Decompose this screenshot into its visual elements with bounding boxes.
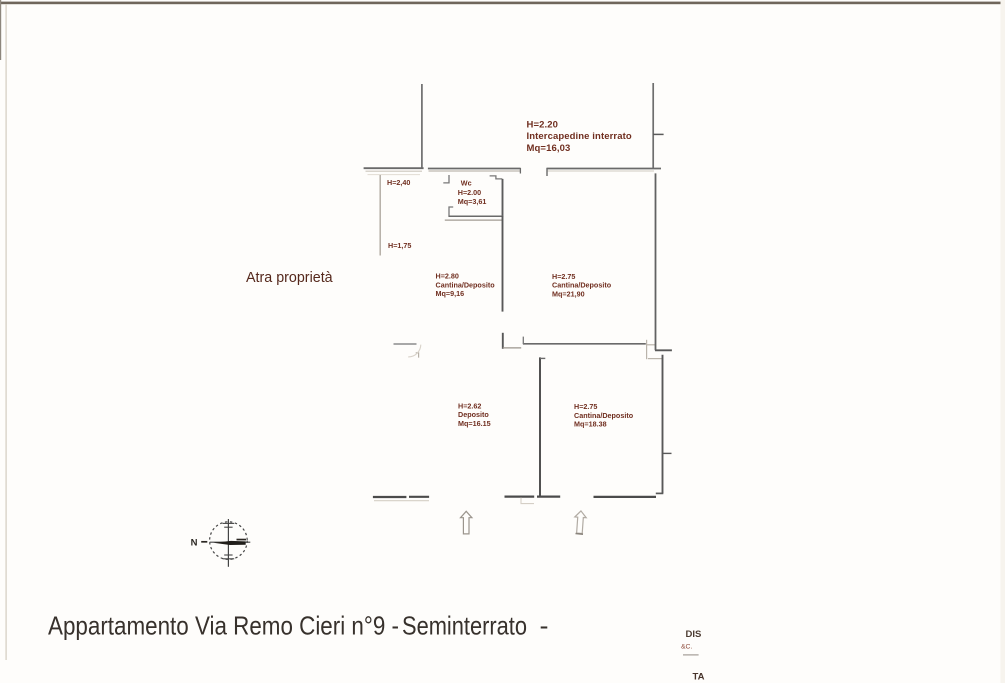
svg-text:Appartamento Via Remo Cieri n°: Appartamento Via Remo Cieri n°9 - (48, 611, 399, 641)
svg-text:Mq=16.15: Mq=16.15 (458, 419, 491, 428)
svg-text:H=2.62: H=2.62 (458, 401, 481, 410)
svg-text:H=1,75: H=1,75 (388, 241, 411, 250)
svg-text:&C.: &C. (681, 643, 692, 650)
svg-text:-: - (540, 611, 549, 641)
svg-text:H=2.20: H=2.20 (527, 120, 559, 131)
svg-text:H=2.00: H=2.00 (458, 188, 481, 197)
svg-text:N: N (191, 537, 198, 548)
svg-text:Atra proprietà: Atra proprietà (246, 270, 333, 286)
svg-text:Mq=16,03: Mq=16,03 (527, 143, 571, 154)
svg-text:Seminterrato: Seminterrato (402, 611, 527, 641)
svg-text:H=2,40: H=2,40 (387, 178, 410, 187)
svg-text:DIS: DIS (686, 629, 702, 640)
svg-text:Intercapedine interrato: Intercapedine interrato (527, 131, 632, 142)
svg-text:H=2.75: H=2.75 (552, 272, 575, 281)
svg-text:H=2.80: H=2.80 (436, 272, 459, 281)
svg-text:Mq=18.38: Mq=18.38 (574, 419, 607, 428)
svg-text:TA: TA (693, 671, 705, 682)
svg-text:Mq=21,90: Mq=21,90 (552, 289, 585, 298)
svg-text:Mq=3,61: Mq=3,61 (458, 197, 487, 206)
svg-text:Mq=9,16: Mq=9,16 (436, 289, 465, 298)
svg-text:Wc: Wc (461, 178, 472, 187)
svg-text:H=2.75: H=2.75 (574, 402, 597, 411)
